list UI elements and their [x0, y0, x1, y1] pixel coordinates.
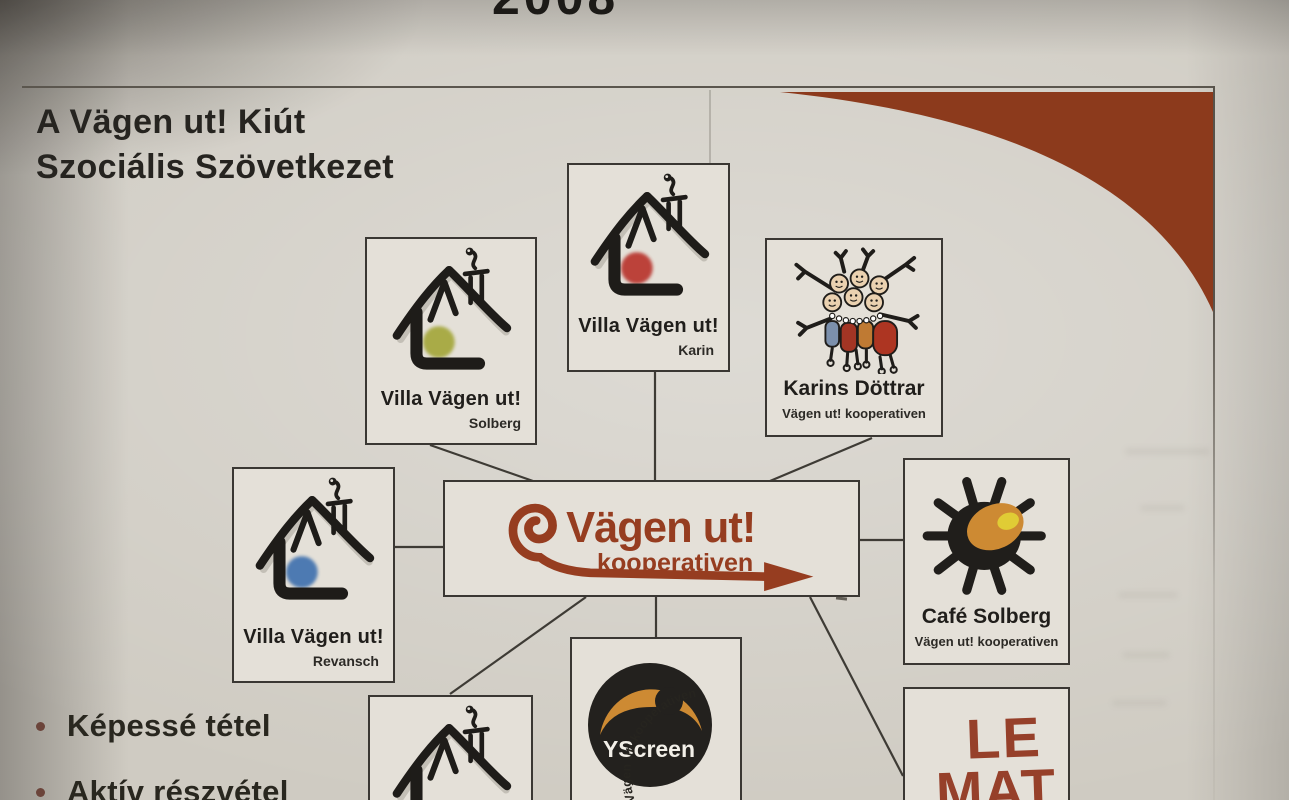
villa-house-logo: [376, 703, 526, 800]
villa-house-logo: [239, 475, 389, 615]
node-sublabel: Vägen ut! kooperativen: [767, 406, 941, 421]
node-yscreen: YScreen Vägen ut! kooperativen: [570, 637, 742, 800]
node-label: Villa Vägen ut!: [569, 315, 728, 338]
node-sublabel: Solberg: [469, 415, 521, 431]
node-villa-revansch: Villa Vägen ut! Revansch: [232, 467, 395, 683]
arrowhead: [764, 562, 813, 591]
connector-lemat: [810, 597, 903, 776]
house-dot: [423, 326, 455, 358]
vagen-ut-logo: Vägen ut! kooperativen: [445, 482, 862, 595]
yscreen-logo: YScreen Vägen ut! kooperativen: [572, 645, 742, 800]
scanned-page: 2008 A Vägen ut! Kiút Szociális Szövetke…: [0, 0, 1289, 800]
node-label: Café Solberg: [905, 605, 1068, 629]
smoke-curl-center: [665, 175, 668, 178]
karins-dottrar-logo: [777, 246, 932, 374]
figure-feet: [827, 360, 896, 374]
node-label: Villa Vägen ut!: [367, 388, 535, 411]
cafe-solberg-sun-logo: [912, 466, 1062, 604]
node-label: Villa Vägen ut!: [234, 626, 393, 649]
villa-house-logo: [376, 245, 526, 385]
le-mat-line2: MAT: [935, 762, 1070, 800]
connector-villa-bottom: [450, 597, 586, 694]
house-ink: [396, 710, 506, 800]
figure-heads: [823, 269, 888, 311]
connector-dottrar: [770, 438, 872, 481]
node-karins-dottrar: Karins Döttrar Vägen ut! kooperativen: [765, 238, 943, 437]
node-sublabel: Karin: [678, 342, 714, 358]
figure-bodies: [825, 321, 897, 355]
node-villa-solberg: Villa Vägen ut! Solberg: [365, 237, 537, 445]
node-villa-bottom: [368, 695, 533, 800]
node-le-mat: LE MAT: [903, 687, 1070, 800]
villa-house-logo: [574, 171, 724, 311]
node-villa-karin: Villa Vägen ut! Karin: [567, 163, 730, 372]
central-logo-name: Vägen ut!: [566, 504, 755, 552]
smoke-curl-center: [467, 249, 470, 252]
node-sublabel: Vägen ut! kooperativen: [905, 634, 1068, 649]
le-mat-logo: LE MAT: [903, 710, 1069, 800]
smoke-curl-center: [330, 479, 333, 482]
house-dot: [621, 252, 653, 284]
smoke-curl-center: [467, 707, 470, 710]
node-sublabel: Revansch: [313, 653, 379, 669]
connector-solberg: [430, 445, 533, 481]
central-logo-sub: kooperativen: [597, 549, 753, 577]
yscreen-label: YScreen: [603, 736, 695, 762]
house-dot: [286, 556, 318, 588]
node-vagen-ut-kooperativen: Vägen ut! kooperativen: [443, 480, 860, 597]
node-label: Karins Döttrar: [767, 377, 941, 401]
node-cafe-solberg: Café Solberg Vägen ut! kooperativen: [903, 458, 1070, 665]
